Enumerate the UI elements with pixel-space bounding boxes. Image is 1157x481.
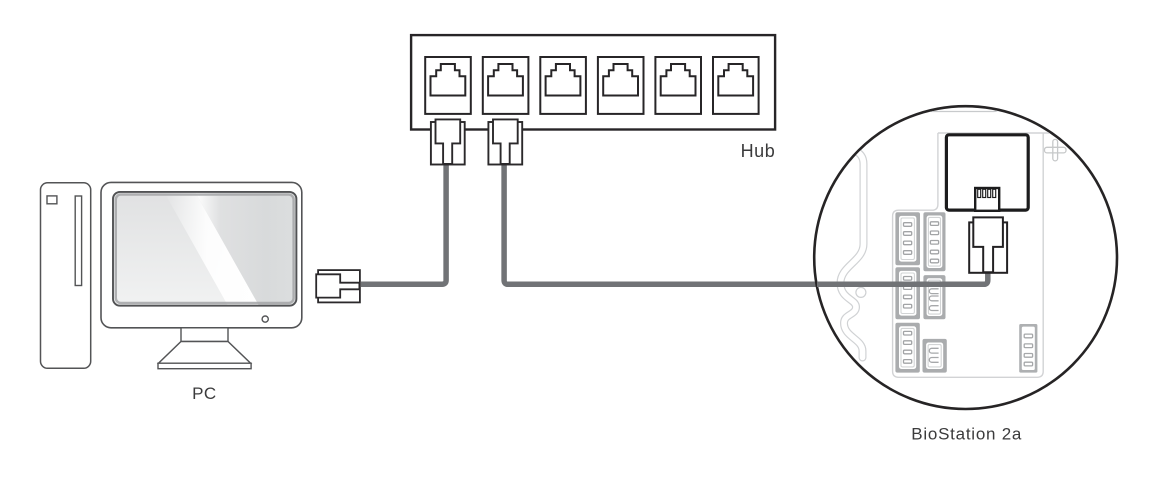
svg-text:PC: PC — [192, 384, 217, 403]
svg-text:Hub: Hub — [741, 141, 776, 161]
svg-text:BioStation 2a: BioStation 2a — [911, 424, 1022, 443]
